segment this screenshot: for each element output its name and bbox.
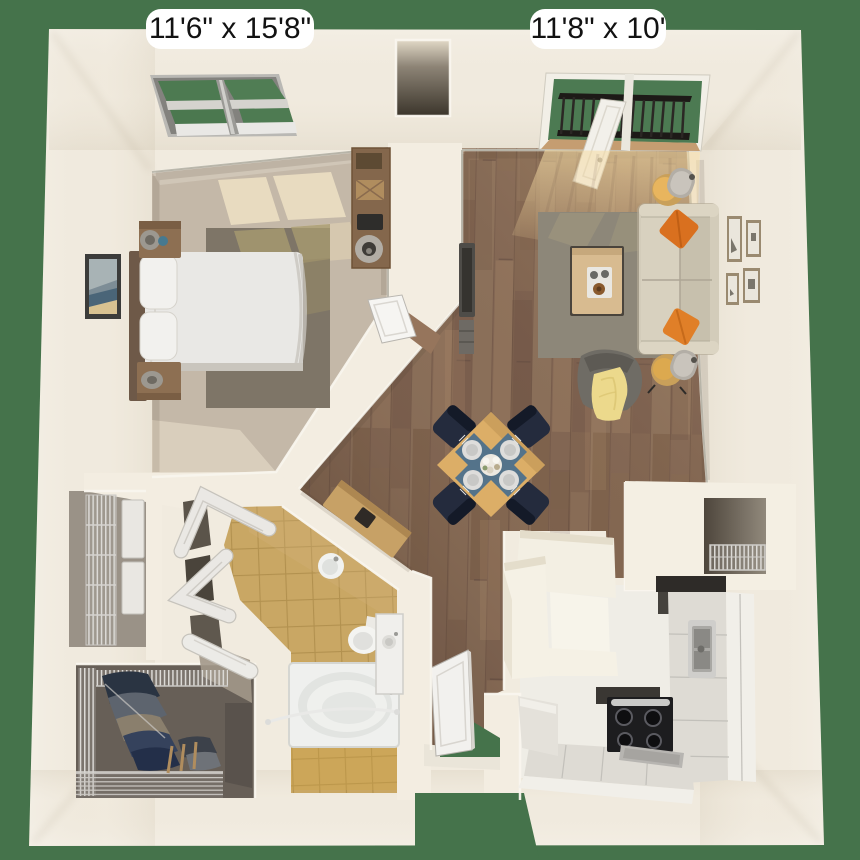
svg-text:11'8" x 10': 11'8" x 10' [531, 12, 666, 45]
svg-text:11'6" x 15'8": 11'6" x 15'8" [149, 12, 311, 45]
